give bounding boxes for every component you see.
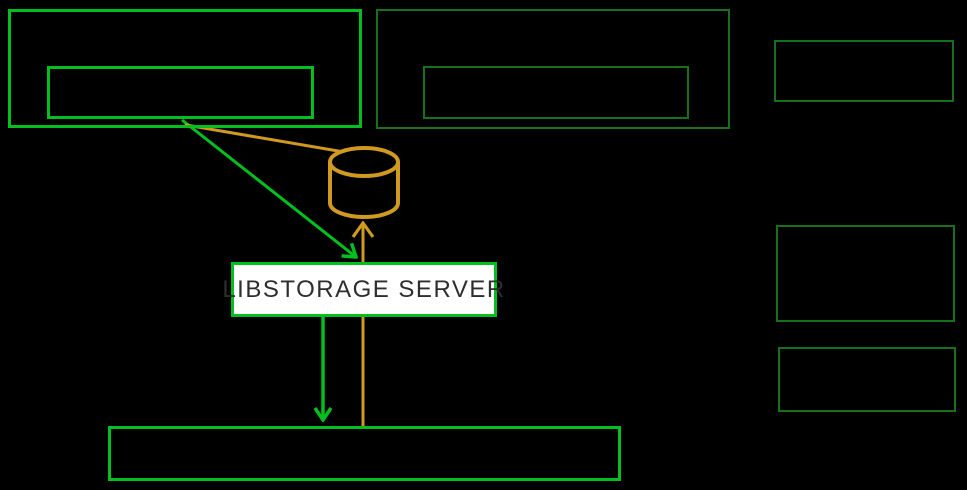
- side-box-middle: [776, 225, 955, 322]
- libstorage-server-node: LIBSTORAGE SERVER: [231, 262, 497, 317]
- storage-bar-box: [108, 426, 621, 481]
- database-cylinder-icon: [330, 148, 398, 217]
- side-box-bottom: [778, 347, 956, 412]
- libstorage-server-label: LIBSTORAGE SERVER: [222, 276, 505, 304]
- edge-host-to-database: [186, 125, 344, 152]
- side-box-top: [774, 40, 954, 102]
- host-group-right-inner-box: [423, 66, 689, 119]
- host-group-left-inner-box: [47, 66, 314, 119]
- diagram-canvas: LIBSTORAGE SERVER: [0, 0, 967, 490]
